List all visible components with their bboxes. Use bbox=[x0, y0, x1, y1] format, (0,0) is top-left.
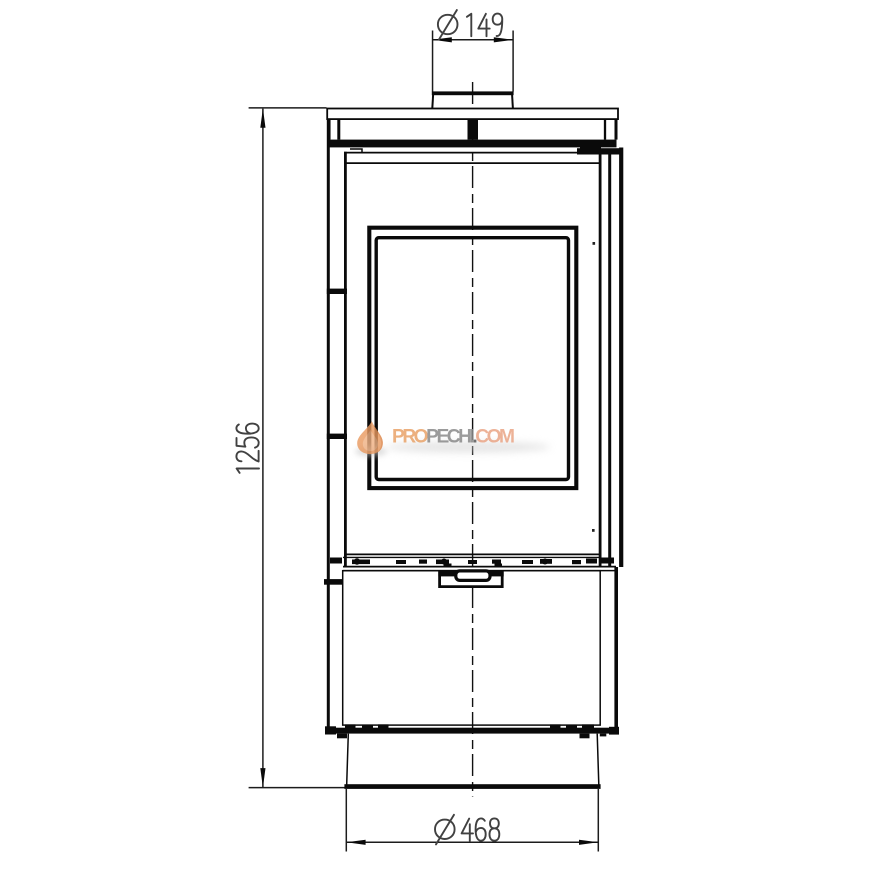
svg-text:PROPECHI.COM: PROPECHI.COM bbox=[392, 427, 515, 448]
